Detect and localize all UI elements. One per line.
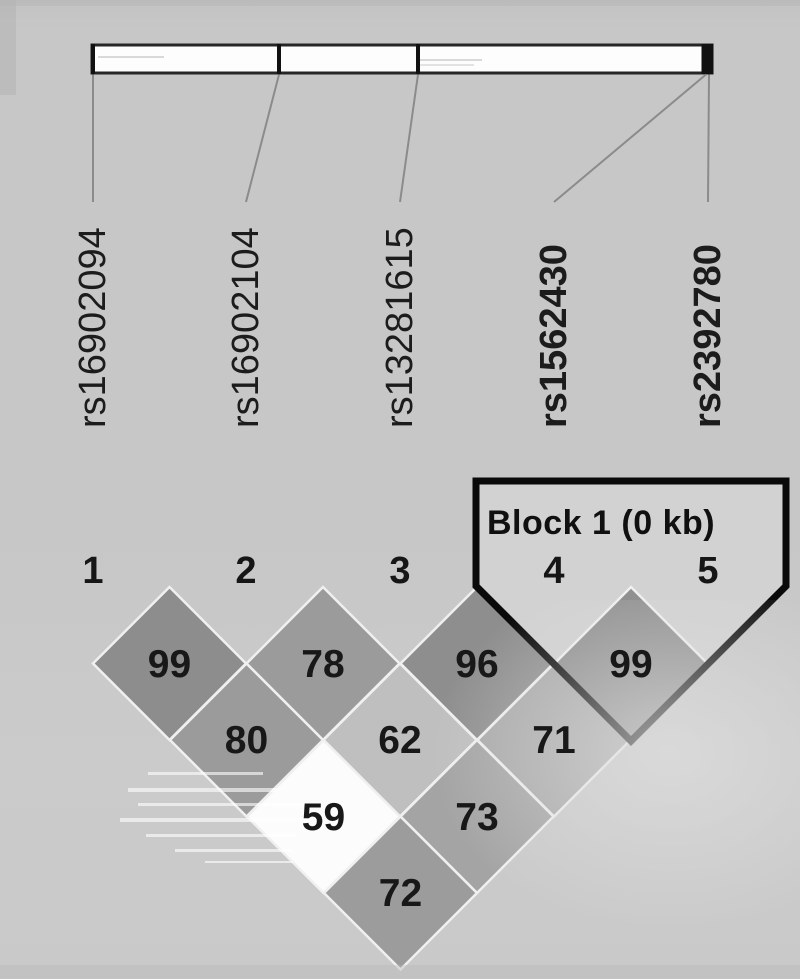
ld-value-4-5: 99 (585, 644, 677, 686)
streak-artifact (205, 861, 293, 863)
snp-label-3: rs13281615 (381, 188, 419, 428)
ld-value-1-5: 72 (355, 873, 447, 915)
block-label: Block 1 (0 kb) (487, 503, 787, 543)
snp-label-4: rs1562430 (535, 188, 573, 428)
ld-value-2-3: 78 (277, 644, 369, 686)
streak-artifact (146, 834, 296, 837)
bottom-edge-artifact (0, 965, 800, 979)
ld-value-3-4: 96 (431, 644, 523, 686)
ld-value-2-5: 73 (431, 797, 523, 839)
streak-artifact (175, 849, 293, 852)
ld-plot-figure: rs16902094 rs16902104 rs13281615 rs15624… (0, 0, 800, 979)
snp-index-3: 3 (368, 551, 432, 591)
top-edge-artifact (0, 0, 800, 6)
snp-tick-5 (705, 44, 714, 74)
snp-connector-4 (554, 75, 706, 203)
corner-artifact (0, 0, 16, 95)
ld-value-2-4: 62 (354, 720, 446, 762)
plot-svg (0, 0, 800, 979)
bar-streak-artifact (98, 56, 164, 58)
snp-tick-3 (416, 44, 420, 74)
ld-value-1-4: 59 (278, 797, 370, 839)
snp-index-5: 5 (676, 551, 740, 591)
snp-index-2: 2 (214, 551, 278, 591)
streak-artifact (128, 788, 278, 792)
snp-label-1: rs16902094 (74, 188, 112, 428)
streak-artifact (148, 772, 263, 775)
snp-tick-2 (277, 44, 281, 74)
ld-value-1-3: 80 (201, 720, 293, 762)
snp-connector-3 (400, 75, 418, 203)
bar-streak-artifact (420, 59, 482, 61)
bar-streak-artifact (420, 64, 474, 66)
snp-label-2: rs16902104 (227, 188, 265, 428)
snp-label-5: rs2392780 (689, 188, 727, 428)
snp-connector-5 (708, 75, 709, 203)
snp-connector-2 (246, 75, 279, 203)
genomic-region-bar (92, 45, 712, 73)
snp-index-1: 1 (61, 551, 125, 591)
ld-value-3-5: 71 (508, 720, 600, 762)
ld-value-1-2: 99 (124, 644, 216, 686)
snp-tick-1 (91, 44, 95, 74)
snp-index-4: 4 (522, 551, 586, 591)
